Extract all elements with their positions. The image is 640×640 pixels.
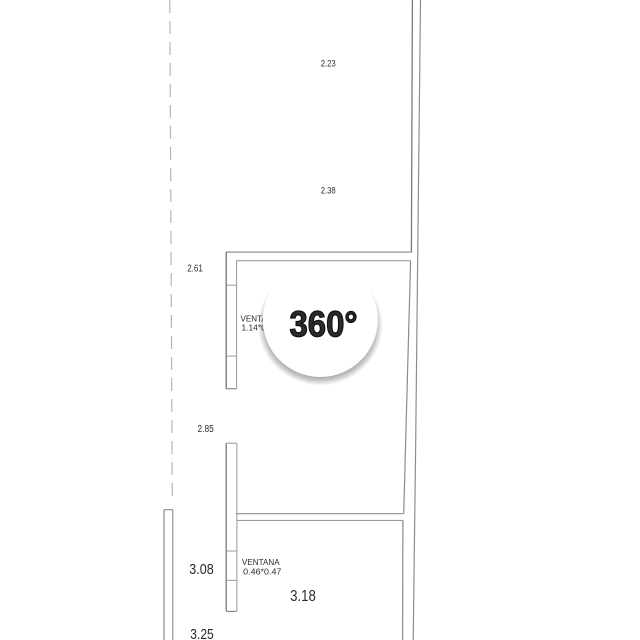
svg-text:3.25: 3.25	[190, 627, 214, 640]
svg-text:360°: 360°	[290, 304, 358, 345]
svg-text:3.08: 3.08	[189, 561, 214, 578]
svg-text:0.46*0.47: 0.46*0.47	[243, 567, 282, 576]
svg-text:2.85: 2.85	[198, 424, 215, 435]
svg-text:VENTANA: VENTANA	[242, 558, 280, 567]
svg-text:3.18: 3.18	[290, 588, 316, 605]
svg-text:2.23: 2.23	[321, 58, 336, 69]
svg-text:2.61: 2.61	[187, 262, 203, 274]
svg-text:2.38: 2.38	[321, 186, 336, 197]
